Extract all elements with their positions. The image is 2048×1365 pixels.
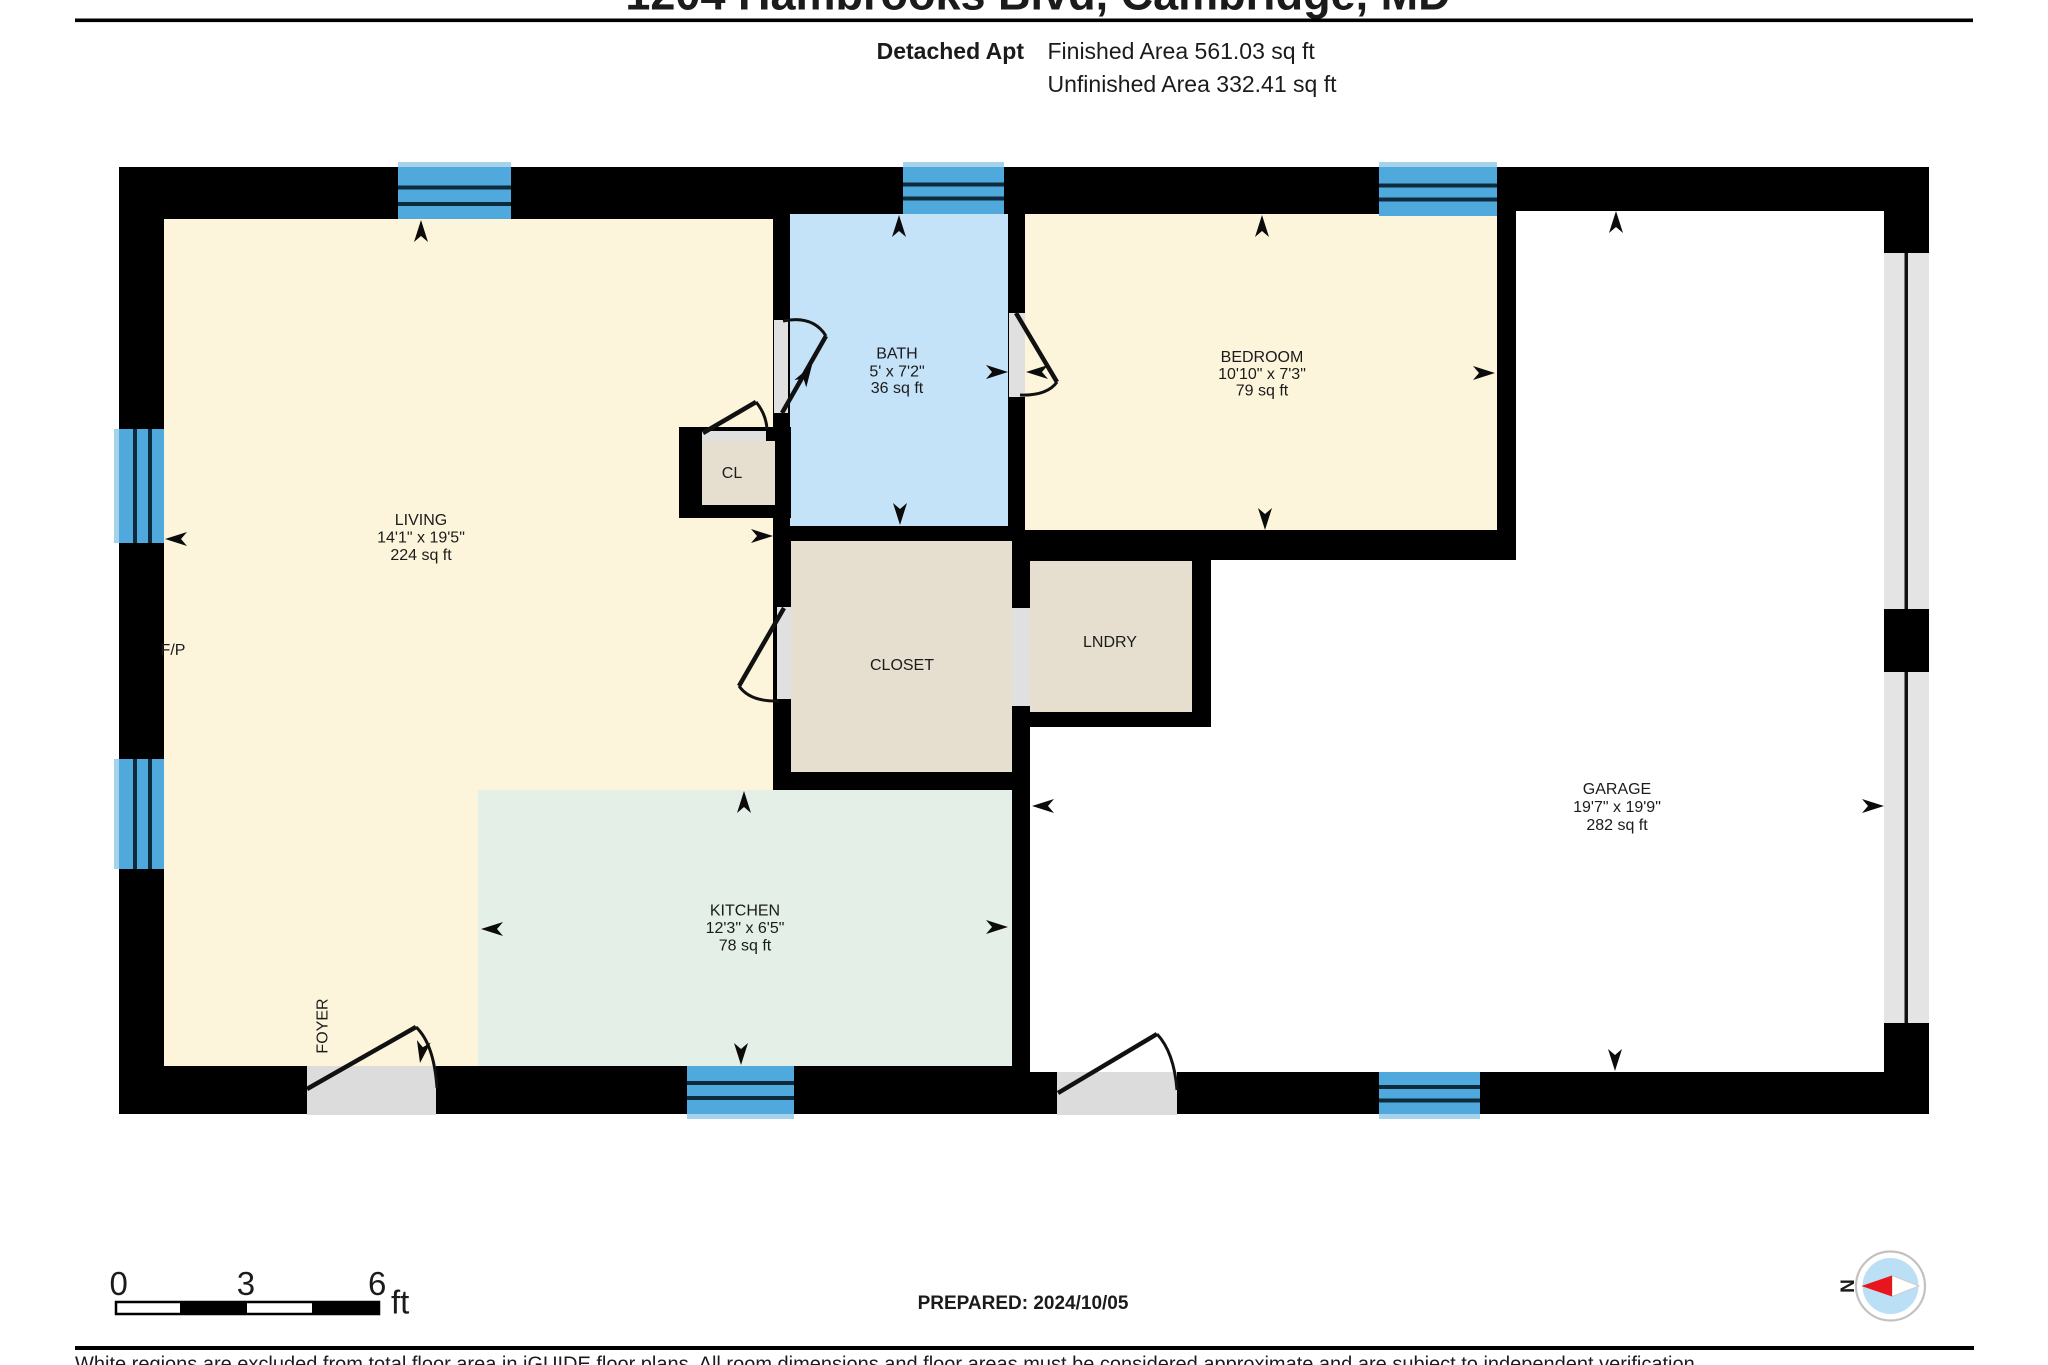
svg-text:10'10" x 7'3": 10'10" x 7'3" <box>1218 366 1306 383</box>
svg-text:PREPARED: 2024/10/05: PREPARED: 2024/10/05 <box>918 1293 1129 1314</box>
svg-text:KITCHEN: KITCHEN <box>710 903 780 920</box>
svg-text:BEDROOM: BEDROOM <box>1221 349 1304 366</box>
svg-text:78 sq ft: 78 sq ft <box>719 938 772 955</box>
svg-text:N: N <box>1838 1279 1859 1293</box>
svg-text:F/P: F/P <box>161 642 186 659</box>
svg-text:12'3" x 6'5": 12'3" x 6'5" <box>706 920 785 937</box>
svg-text:5' x 7'2": 5' x 7'2" <box>869 364 924 381</box>
svg-text:LNDRY: LNDRY <box>1083 634 1137 651</box>
svg-text:224 sq ft: 224 sq ft <box>390 547 452 564</box>
svg-text:Unfinished Area 332.41 sq ft: Unfinished Area 332.41 sq ft <box>1048 71 1338 97</box>
svg-text:282 sq ft: 282 sq ft <box>1586 817 1648 834</box>
svg-text:1204 Hambrooks Blvd, Cambridge: 1204 Hambrooks Blvd, Cambridge, MD <box>625 0 1450 20</box>
svg-text:CL: CL <box>722 465 743 482</box>
svg-text:White regions are excluded fro: White regions are excluded from total fl… <box>75 1354 1700 1365</box>
svg-text:FOYER: FOYER <box>315 998 332 1053</box>
svg-text:36 sq ft: 36 sq ft <box>871 380 924 397</box>
svg-text:14'1" x 19'5": 14'1" x 19'5" <box>377 530 465 547</box>
svg-text:0: 0 <box>110 1265 128 1302</box>
svg-text:Detached Apt: Detached Apt <box>877 38 1025 64</box>
svg-text:CLOSET: CLOSET <box>870 657 934 674</box>
svg-text:GARAGE: GARAGE <box>1583 781 1651 798</box>
svg-text:3: 3 <box>237 1265 255 1302</box>
svg-text:Finished Area 561.03 sq ft: Finished Area 561.03 sq ft <box>1048 38 1316 64</box>
svg-text:BATH: BATH <box>876 346 917 363</box>
svg-text:19'7" x 19'9": 19'7" x 19'9" <box>1573 799 1661 816</box>
svg-text:79 sq ft: 79 sq ft <box>1236 383 1289 400</box>
svg-text:LIVING: LIVING <box>395 512 447 529</box>
svg-text:6: 6 <box>368 1265 386 1302</box>
svg-text:ft: ft <box>391 1284 409 1321</box>
